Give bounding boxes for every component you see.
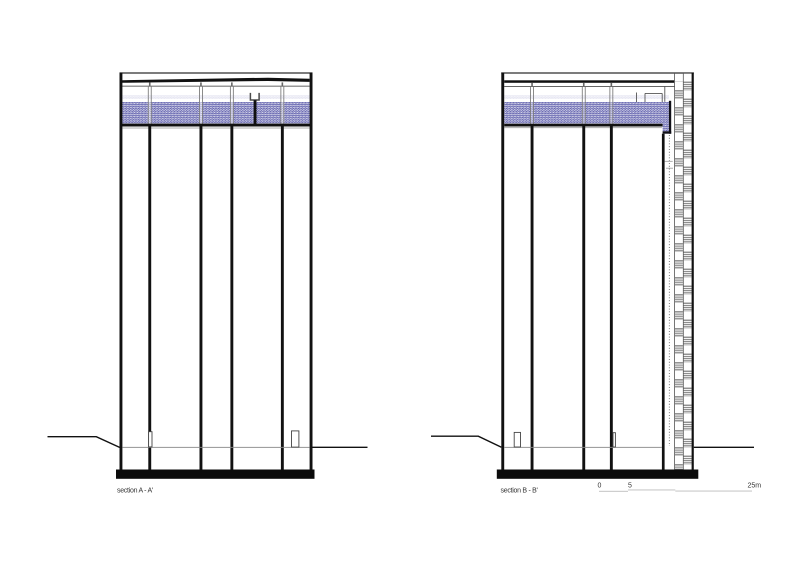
svg-text:section A - A': section A - A': [117, 487, 153, 494]
svg-text:section B - B': section B - B': [501, 487, 538, 494]
svg-text:0: 0: [598, 482, 602, 489]
svg-text:5: 5: [628, 482, 632, 489]
svg-text:25m: 25m: [748, 482, 762, 489]
